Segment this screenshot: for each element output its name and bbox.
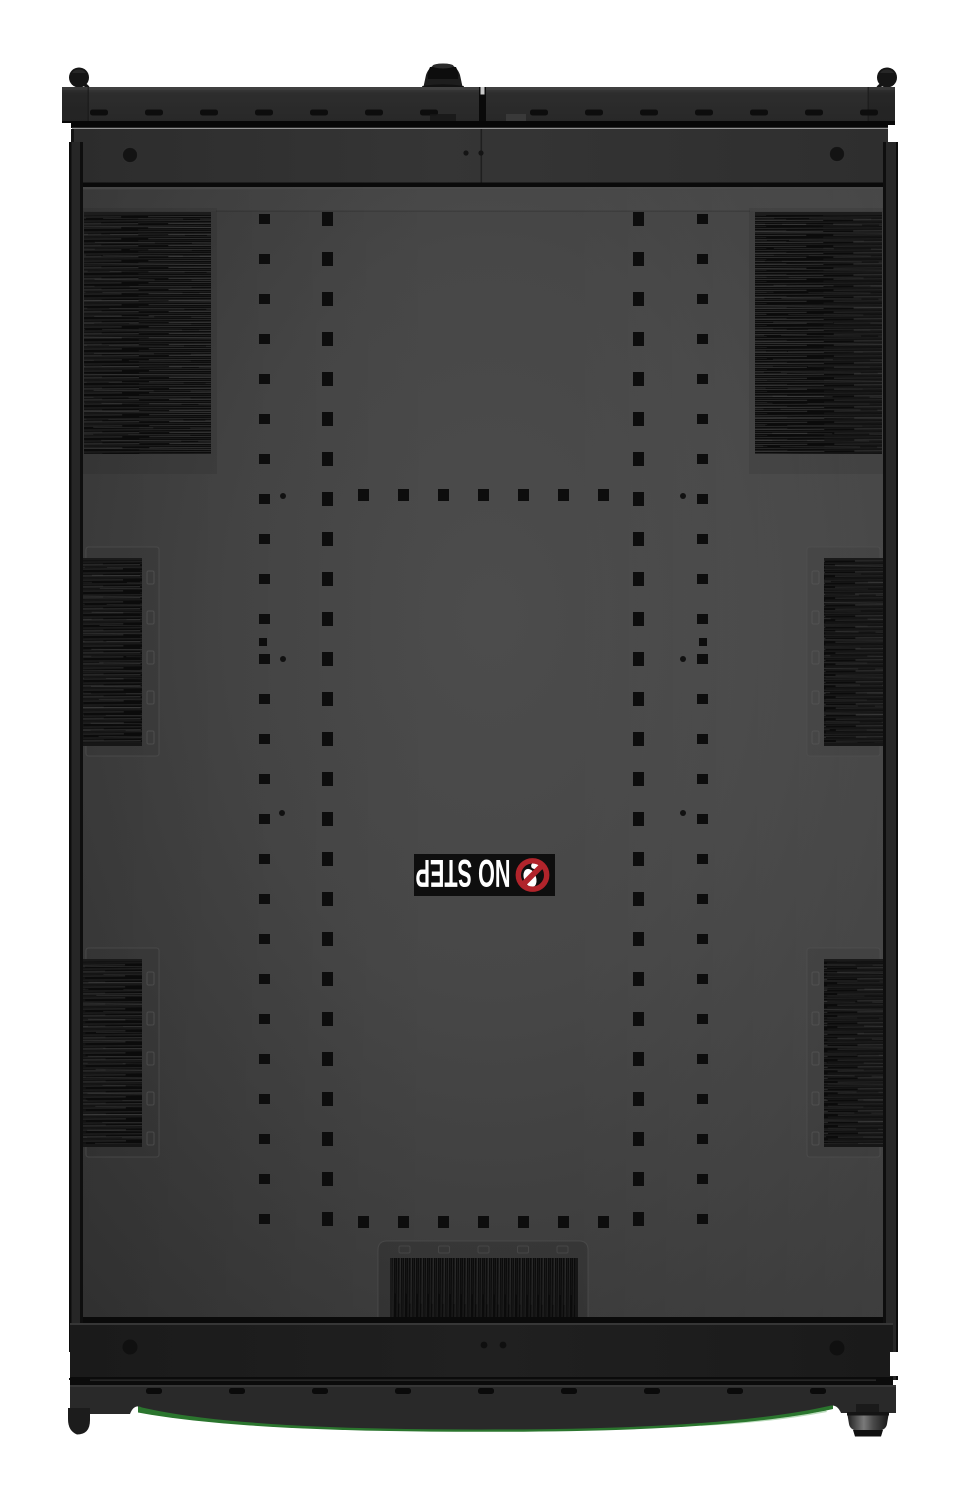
svg-text:NO STEP: NO STEP	[416, 851, 511, 894]
